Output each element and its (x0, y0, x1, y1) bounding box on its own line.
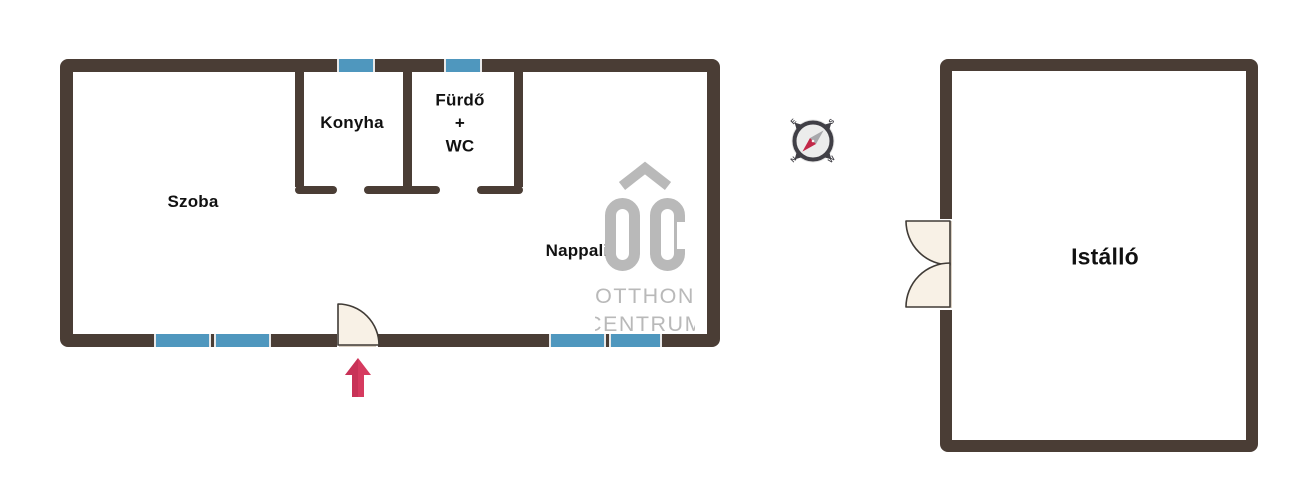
window-furdo (444, 59, 482, 72)
wall-konyha-bottom-left (295, 186, 337, 194)
compass-icon: E S N W (782, 110, 844, 172)
window-szoba-2 (214, 334, 271, 347)
entrance-door-swing (330, 296, 384, 348)
room-label-szoba: Szoba (167, 192, 218, 212)
logo-text-centrum: CENTRUM (595, 312, 695, 335)
otthon-centrum-watermark-logo: OTTHON CENTRUM (595, 160, 695, 335)
window-konyha (337, 59, 375, 72)
wall-konyha-furdo-bottom (364, 186, 440, 194)
window-nappali-2 (609, 334, 662, 347)
logo-monogram-oc (611, 204, 696, 266)
window-szoba-1 (154, 334, 211, 347)
wall-konyha-left (295, 72, 304, 187)
stable-double-door-swing (898, 214, 954, 314)
room-label-konyha: Konyha (320, 113, 384, 133)
furdo-line-2: + (415, 113, 505, 136)
logo-text-otthon: OTTHON (595, 284, 695, 308)
wall-konyha-furdo-divider (403, 72, 412, 187)
room-label-istallo: Istálló (1071, 244, 1139, 271)
logo-roof-icon (622, 168, 668, 186)
floor-plan-canvas: Szoba Konyha Fürdő + WC Nappali OTTHON C… (0, 0, 1293, 500)
wall-furdo-bottom-right (477, 186, 523, 194)
entrance-arrow-icon (345, 358, 371, 398)
wall-furdo-right (514, 72, 523, 187)
furdo-line-1: Fürdő (415, 90, 505, 113)
furdo-line-3: WC (415, 135, 505, 158)
room-label-furdo-wc: Fürdő + WC (415, 90, 505, 159)
window-nappali-1 (549, 334, 606, 347)
